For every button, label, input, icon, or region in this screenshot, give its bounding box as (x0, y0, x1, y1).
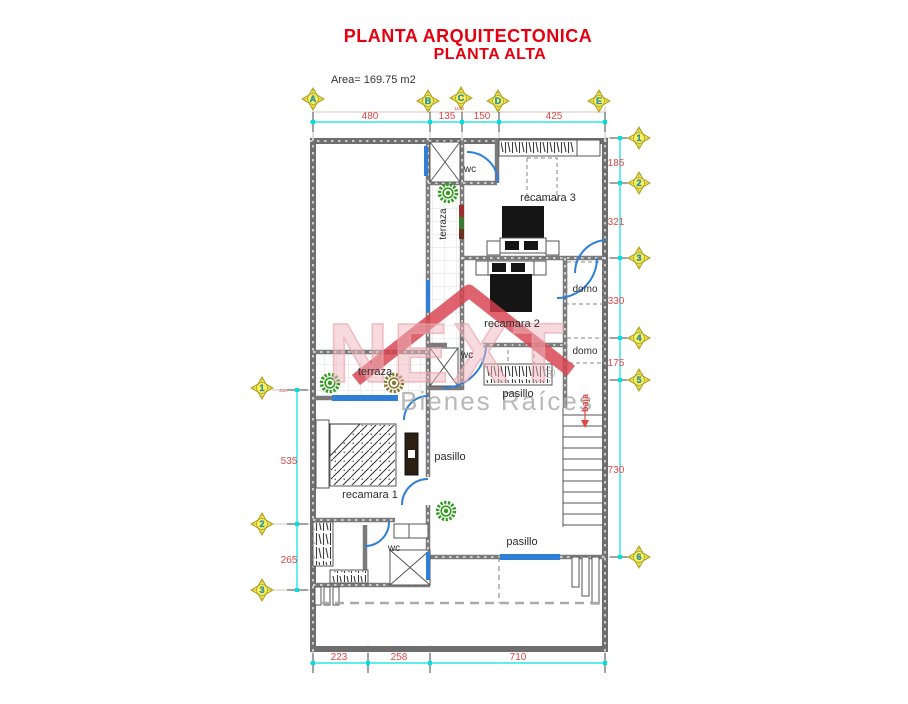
watermark-registered: ® (544, 365, 555, 382)
label-wc-top: wc (463, 164, 476, 175)
label-recamara-1: recamara 1 (342, 489, 398, 501)
label-terraza-left: terraza (358, 366, 393, 378)
dim-right-4: 175 (608, 358, 625, 369)
grid-marker-b: B (417, 90, 439, 112)
grid-marker-r6: 6 (628, 546, 650, 568)
label-pasillo-bottom: pasillo (506, 536, 537, 548)
label-baja: baja (580, 393, 590, 412)
svg-text:C: C (458, 93, 465, 103)
svg-text:1: 1 (259, 383, 264, 393)
svg-text:2: 2 (259, 519, 264, 529)
grid-marker-l3: 3 (251, 579, 273, 601)
svg-text:2: 2 (636, 178, 641, 188)
svg-text:6: 6 (636, 552, 641, 562)
grid-marker-r1: 1 (628, 127, 650, 149)
label-recamara-2: recamara 2 (484, 318, 540, 330)
label-recamara-3: recamara 3 (520, 192, 576, 204)
dim-bottom-1: 223 (331, 652, 348, 663)
dim-top-3: 150 (474, 111, 491, 122)
dim-right-3: 330 (608, 296, 625, 307)
label-pasillo-mid: pasillo (502, 388, 533, 400)
label-wc-bottom: wc (387, 543, 400, 554)
grid-marker-l1: 1 (251, 377, 273, 399)
svg-text:3: 3 (259, 585, 264, 595)
grid-marker-r3: 3 (628, 247, 650, 269)
label-terraza-vertical: terraza (438, 208, 449, 240)
svg-text:1: 1 (636, 133, 641, 143)
svg-text:B: B (425, 96, 432, 106)
grid-marker-r4: 4 (628, 327, 650, 349)
label-domo-upper: domo (572, 284, 597, 295)
floor-plan-canvas: PLANTA ARQUITECTONICA PLANTA ALTA Area= … (0, 0, 908, 704)
grid-marker-d: D (487, 90, 509, 112)
svg-text:4: 4 (636, 333, 641, 343)
svg-text:D: D (495, 96, 502, 106)
dim-left-1: 535 (281, 456, 298, 467)
grid-marker-l2: 2 (251, 513, 273, 535)
svg-text:E: E (596, 96, 602, 106)
grid-marker-r5: 5 (628, 369, 650, 391)
dim-top-2: 135 (439, 111, 456, 122)
grid-marker-a: A (302, 88, 324, 110)
dim-bottom-3: 710 (510, 652, 527, 663)
svg-text:5: 5 (636, 375, 641, 385)
dim-top-4: 425 (546, 111, 563, 122)
dim-left-note: 216 (279, 388, 287, 393)
grid-marker-r2: 2 (628, 172, 650, 194)
dim-top-1: 480 (362, 111, 379, 122)
dim-right-5: 730 (608, 465, 625, 476)
dim-right-1: 185 (608, 158, 625, 169)
dim-right-2: 321 (608, 217, 625, 228)
dim-left-2: 265 (281, 555, 298, 566)
floor-plan-drawing: 480 135 150 425 1190 185 321 330 175 730… (0, 0, 908, 704)
label-pasillo-center: pasillo (434, 451, 465, 463)
label-wc-mid: wc (460, 350, 473, 361)
svg-text:3: 3 (636, 253, 641, 263)
watermark-subtitle: Bienes Raíces (400, 386, 594, 416)
svg-text:A: A (310, 94, 317, 104)
grid-marker-e: E (588, 90, 610, 112)
dim-bottom-2: 258 (391, 652, 408, 663)
plant-icon (438, 503, 455, 520)
label-domo-lower: domo (572, 346, 597, 357)
stairs (563, 408, 603, 527)
